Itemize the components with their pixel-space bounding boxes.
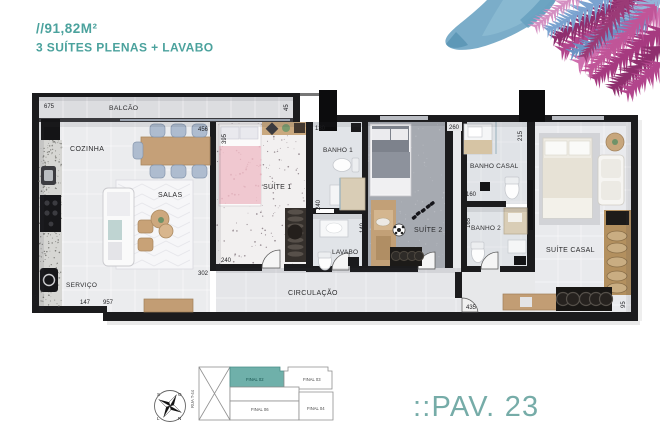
svg-text:BANHO 2: BANHO 2 <box>471 225 501 232</box>
svg-text:FINAL 04: FINAL 04 <box>307 406 325 411</box>
svg-text:3 SUÍTES PLENAS + LAVABO: 3 SUÍTES PLENAS + LAVABO <box>36 40 214 55</box>
svg-text:RUA T-44: RUA T-44 <box>190 389 195 408</box>
svg-text:435: 435 <box>466 305 477 311</box>
svg-text:160: 160 <box>466 192 477 198</box>
svg-text:505: 505 <box>33 294 39 305</box>
svg-text:COZINHA: COZINHA <box>70 146 104 153</box>
svg-text:140: 140 <box>360 222 366 233</box>
svg-text:165: 165 <box>466 217 472 228</box>
svg-text:BALCÃO: BALCÃO <box>109 103 138 112</box>
svg-text:957: 957 <box>103 300 114 306</box>
svg-text:FINAL 02: FINAL 02 <box>246 377 264 382</box>
svg-text:SALAS: SALAS <box>158 192 183 199</box>
svg-text:130: 130 <box>315 126 326 132</box>
svg-text:147: 147 <box>80 300 91 306</box>
svg-text:395: 395 <box>222 133 228 144</box>
svg-text:240: 240 <box>221 258 232 264</box>
svg-text:45: 45 <box>284 104 290 111</box>
svg-text:N: N <box>178 416 181 421</box>
svg-text:456: 456 <box>198 127 209 133</box>
svg-text:SUÍTE CASAL: SUÍTE CASAL <box>546 245 595 254</box>
svg-text:::PAV. 23: ::PAV. 23 <box>413 391 539 423</box>
svg-text:260: 260 <box>449 125 460 131</box>
svg-text:215: 215 <box>518 130 524 141</box>
svg-text:LAVABO: LAVABO <box>332 249 358 256</box>
svg-text:95: 95 <box>621 301 627 308</box>
svg-text:S: S <box>157 392 160 397</box>
svg-text:675: 675 <box>44 104 55 110</box>
svg-text:O: O <box>178 392 182 397</box>
svg-text:BANHO CASAL: BANHO CASAL <box>470 163 519 170</box>
svg-text:240: 240 <box>316 199 322 210</box>
svg-text:SERVIÇO: SERVIÇO <box>66 282 97 289</box>
svg-text:CIRCULAÇÃO: CIRCULAÇÃO <box>288 288 338 297</box>
svg-text://91,82M²: //91,82M² <box>36 21 98 36</box>
svg-text:FINAL 06: FINAL 06 <box>251 407 269 412</box>
svg-text:SUÍTE 1: SUÍTE 1 <box>263 182 292 191</box>
svg-text:BANHO 1: BANHO 1 <box>323 147 353 154</box>
svg-text:FINAL 03: FINAL 03 <box>303 377 321 382</box>
svg-text:302: 302 <box>198 271 209 277</box>
svg-text:SUÍTE 2: SUÍTE 2 <box>414 225 443 234</box>
